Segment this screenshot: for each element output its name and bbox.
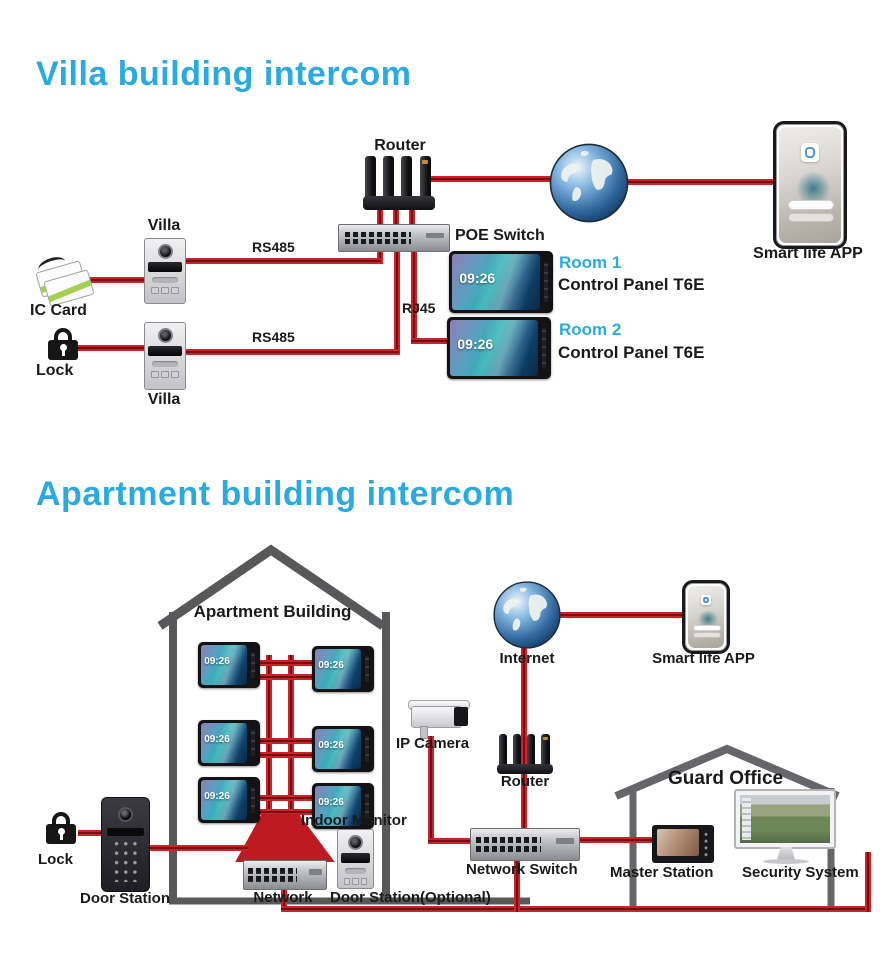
display-strip [107,828,144,836]
camera-lens-icon [348,835,363,850]
indoor-monitor-device: 09:26 [312,646,374,692]
connection-line [430,176,552,182]
call-buttons [344,878,367,885]
antenna-icon [527,734,535,766]
router-device [497,734,553,774]
villa-door-station-device [144,238,186,304]
router-device [363,156,435,210]
control-panel-device: 09:26 [449,251,553,313]
camera-lens-icon [158,244,173,259]
connection-line [260,752,312,758]
signup-button [693,632,720,638]
villa-label-bottom: Villa [144,391,184,409]
indoor-monitor-device: 09:26 [198,642,260,688]
clock-text: 09:26 [318,740,344,751]
indoor-monitor-device: 09:26 [198,777,260,823]
router-label: Router [497,773,553,790]
door-station-optional-device [337,829,374,889]
smart-life-app-icon [801,143,820,162]
rj45-label: RJ45 [402,300,435,316]
speaker-grille [152,277,178,283]
indoor-monitor-label: Indoor Monitor [301,812,407,829]
panel-bezel [249,781,257,820]
connection-line [411,248,417,343]
rs485-label: RS485 [252,329,295,345]
router-label: Router [368,137,432,155]
clock-text: 09:26 [459,270,495,286]
internet-label: Internet [492,650,562,667]
connection-line [260,738,312,744]
smart-life-app-label: Smart life APP [740,245,876,263]
connection-line [184,258,381,264]
connection-line [88,277,146,283]
master-buttons [702,831,710,857]
clock-text: 09:26 [457,336,493,352]
apartment-section-title: Apartment building intercom [36,475,514,514]
antenna-icon [541,734,549,766]
lock-body [46,824,76,844]
connection-line [260,660,312,666]
internet-globe-icon [492,580,562,650]
network-label: Network [240,889,326,906]
security-system-label: Security System [742,864,859,881]
rs485-label: RS485 [252,239,295,255]
villa-door-station-device [144,322,186,390]
connection-line [428,736,434,844]
lock-icon [48,328,78,360]
connection-line [184,349,399,355]
display-strip [341,853,370,863]
room2-label: Room 2 [559,320,621,340]
monitor-frame [734,789,836,849]
antenna-icon [420,156,431,199]
surveillance-screen [740,795,830,843]
lock-body [48,340,78,360]
panel-bezel [363,650,371,689]
smartphone-device [773,121,847,249]
master-screen [657,829,699,856]
panel-bezel [363,730,371,769]
ic-card-icon [38,262,92,302]
software-sidebar [740,795,753,843]
switch-badge [309,869,322,875]
master-station-label: Master Station [610,864,713,881]
villa-label-top: Villa [144,217,184,235]
control-panel-device: 09:26 [447,317,551,379]
room1-label: Room 1 [559,253,621,273]
keyhole-stem [62,349,65,356]
connection-line [260,674,312,680]
connection-line [394,248,400,355]
display-strip [148,262,182,272]
smart-life-app-icon [701,595,712,606]
keypad [112,839,138,882]
switch-ports [476,837,541,852]
switch-ports [345,232,411,244]
connection-line [428,838,473,844]
indoor-monitor-device: 09:26 [312,726,374,772]
clock-text: 09:26 [318,660,344,671]
network-switch-device [243,860,327,890]
clock-text: 09:26 [318,797,344,808]
antenna-icon [365,156,376,199]
lock-label: Lock [38,851,73,868]
signup-button [788,213,833,223]
connection-line [78,345,146,351]
camera-lens-icon [158,328,173,343]
connection-line [865,852,871,912]
switch-ports [248,868,297,881]
network-switch-device [470,828,580,861]
call-buttons [151,371,179,378]
clock-text: 09:26 [204,791,230,802]
door-station-label: Door Station [70,890,180,907]
clock-text: 09:26 [204,656,230,667]
smartphone-device [682,580,730,654]
speaker-grille [345,868,366,874]
panel-bezel [249,646,257,685]
ip-camera-device [408,698,468,738]
connection-line [281,906,871,912]
poe-switch-label: POE Switch [455,227,545,245]
apartment-building-label: Apartment Building [180,602,365,622]
keyhole-stem [60,833,63,840]
diagram-canvas: Villa building intercom Router [0,0,891,960]
login-button [693,625,720,631]
room1-device-label: Control Panel T6E [558,275,704,295]
connection-line [78,830,103,836]
ic-card-label: IC Card [30,302,87,320]
camera-lens-icon [454,707,468,726]
connection-line [560,612,682,618]
internet-globe-icon [548,142,630,224]
connection-line [626,179,776,185]
villa-section-title: Villa building intercom [36,55,411,94]
antenna-icon [401,156,412,199]
indoor-monitor-device: 09:26 [198,720,260,766]
panel-bezel [249,724,257,763]
ip-camera-label: IP Camera [396,735,469,752]
antenna-icon [499,734,507,766]
poe-switch-device [338,224,450,252]
connection-line [260,795,312,801]
speaker-grille [152,361,178,367]
room2-device-label: Control Panel T6E [558,343,704,363]
lock-label: Lock [36,362,73,380]
switch-badge [556,838,573,844]
master-station-device [652,825,714,863]
phone-screen [688,586,724,648]
door-station-optional-label: Door Station(Optional) [330,889,491,906]
connection-line [411,338,451,344]
panel-bezel [542,256,550,308]
phone-screen [779,127,841,243]
lock-icon [46,812,76,844]
display-strip [148,346,182,356]
antenna-icon [383,156,394,199]
clock-text: 09:26 [204,734,230,745]
login-button [788,200,833,210]
guard-office-label: Guard Office [668,768,783,790]
antenna-icon [513,734,521,766]
connection-line [148,845,248,851]
panel-bezel [540,322,548,374]
security-monitor-device [734,789,838,869]
door-station-device [101,797,150,892]
network-switch-label: Network Switch [466,861,578,878]
smart-life-app-label: Smart life APP [646,650,761,667]
router-base [363,196,435,210]
camera-lens-icon [118,807,133,822]
call-buttons [151,287,179,294]
connection-line [578,837,654,843]
switch-badge [426,233,444,238]
